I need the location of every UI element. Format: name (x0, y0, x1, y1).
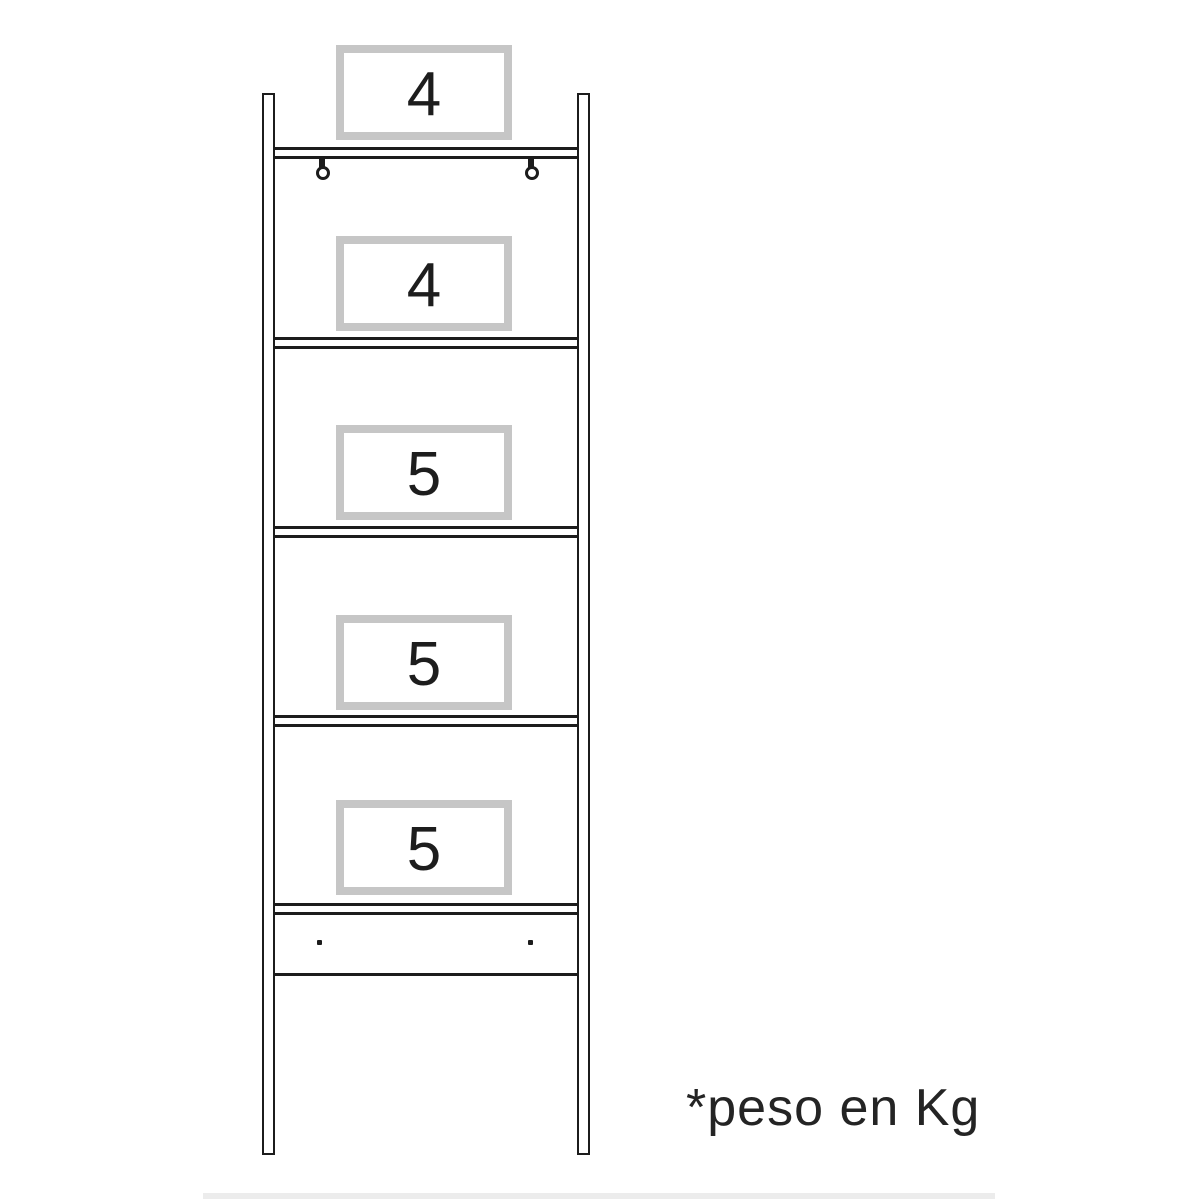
weight-label-box: 5 (336, 425, 512, 520)
weight-value: 5 (407, 634, 441, 696)
shelf-3 (273, 526, 579, 538)
weight-label-box: 5 (336, 800, 512, 895)
weight-value: 5 (407, 819, 441, 881)
mounting-hook-icon (314, 159, 330, 181)
shelf-5 (273, 903, 579, 915)
right-post (577, 93, 590, 1155)
mounting-hook-icon (523, 159, 539, 181)
shelf-1 (273, 147, 579, 159)
shelf-2 (273, 337, 579, 349)
weight-value: 5 (407, 444, 441, 506)
shelf-4 (273, 715, 579, 727)
weight-label-box: 5 (336, 615, 512, 710)
weight-label-box: 4 (336, 45, 512, 140)
base-panel (273, 915, 579, 976)
bottom-edge-line (203, 1193, 995, 1199)
weight-label-box: 4 (336, 236, 512, 331)
weight-value: 4 (407, 255, 441, 317)
left-post (262, 93, 275, 1155)
weight-value: 4 (407, 64, 441, 126)
footnote-weight-units: *peso en Kg (686, 1078, 980, 1138)
screw-dot-icon (317, 940, 322, 945)
shelving-weight-diagram: 4 4 5 5 5 *peso en Kg (0, 0, 1200, 1200)
screw-dot-icon (528, 940, 533, 945)
